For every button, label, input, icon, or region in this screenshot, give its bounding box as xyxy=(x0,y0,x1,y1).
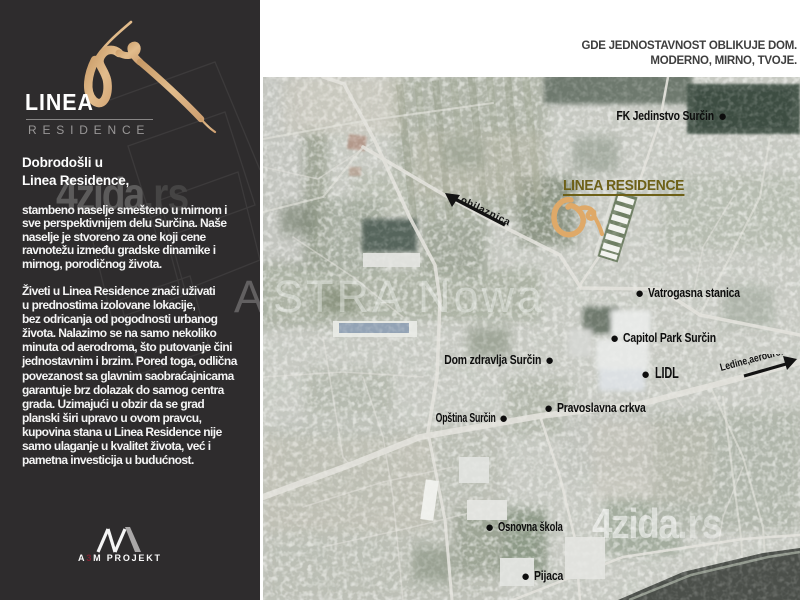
svg-text:obilaznica: obilaznica xyxy=(459,195,513,229)
svg-text:Ledine,aerodrom: Ledine,aerodrom xyxy=(719,354,790,374)
